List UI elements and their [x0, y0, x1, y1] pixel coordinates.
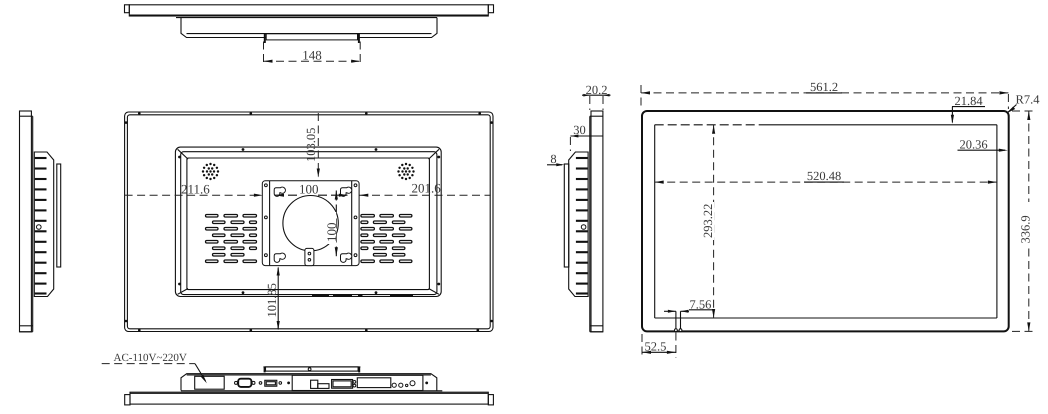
svg-text:336.9: 336.9 [1019, 215, 1033, 243]
svg-text:293.22: 293.22 [701, 204, 715, 238]
svg-text:103.05: 103.05 [304, 128, 318, 162]
svg-text:7.56: 7.56 [690, 297, 712, 311]
svg-text:201.6: 201.6 [412, 181, 442, 196]
svg-text:R7.4: R7.4 [1016, 93, 1041, 107]
svg-text:20.36: 20.36 [960, 138, 988, 152]
svg-text:520.48: 520.48 [807, 169, 841, 183]
svg-text:AC-110V~220V: AC-110V~220V [114, 352, 187, 364]
svg-text:101.85: 101.85 [265, 283, 279, 317]
svg-text:211.6: 211.6 [181, 182, 210, 197]
svg-text:8: 8 [550, 152, 556, 166]
svg-text:100: 100 [299, 182, 319, 197]
svg-text:30: 30 [573, 123, 586, 137]
svg-text:100: 100 [324, 223, 339, 243]
svg-text:561.2: 561.2 [810, 80, 838, 94]
svg-text:148: 148 [302, 48, 322, 63]
svg-text:21.84: 21.84 [955, 94, 984, 108]
